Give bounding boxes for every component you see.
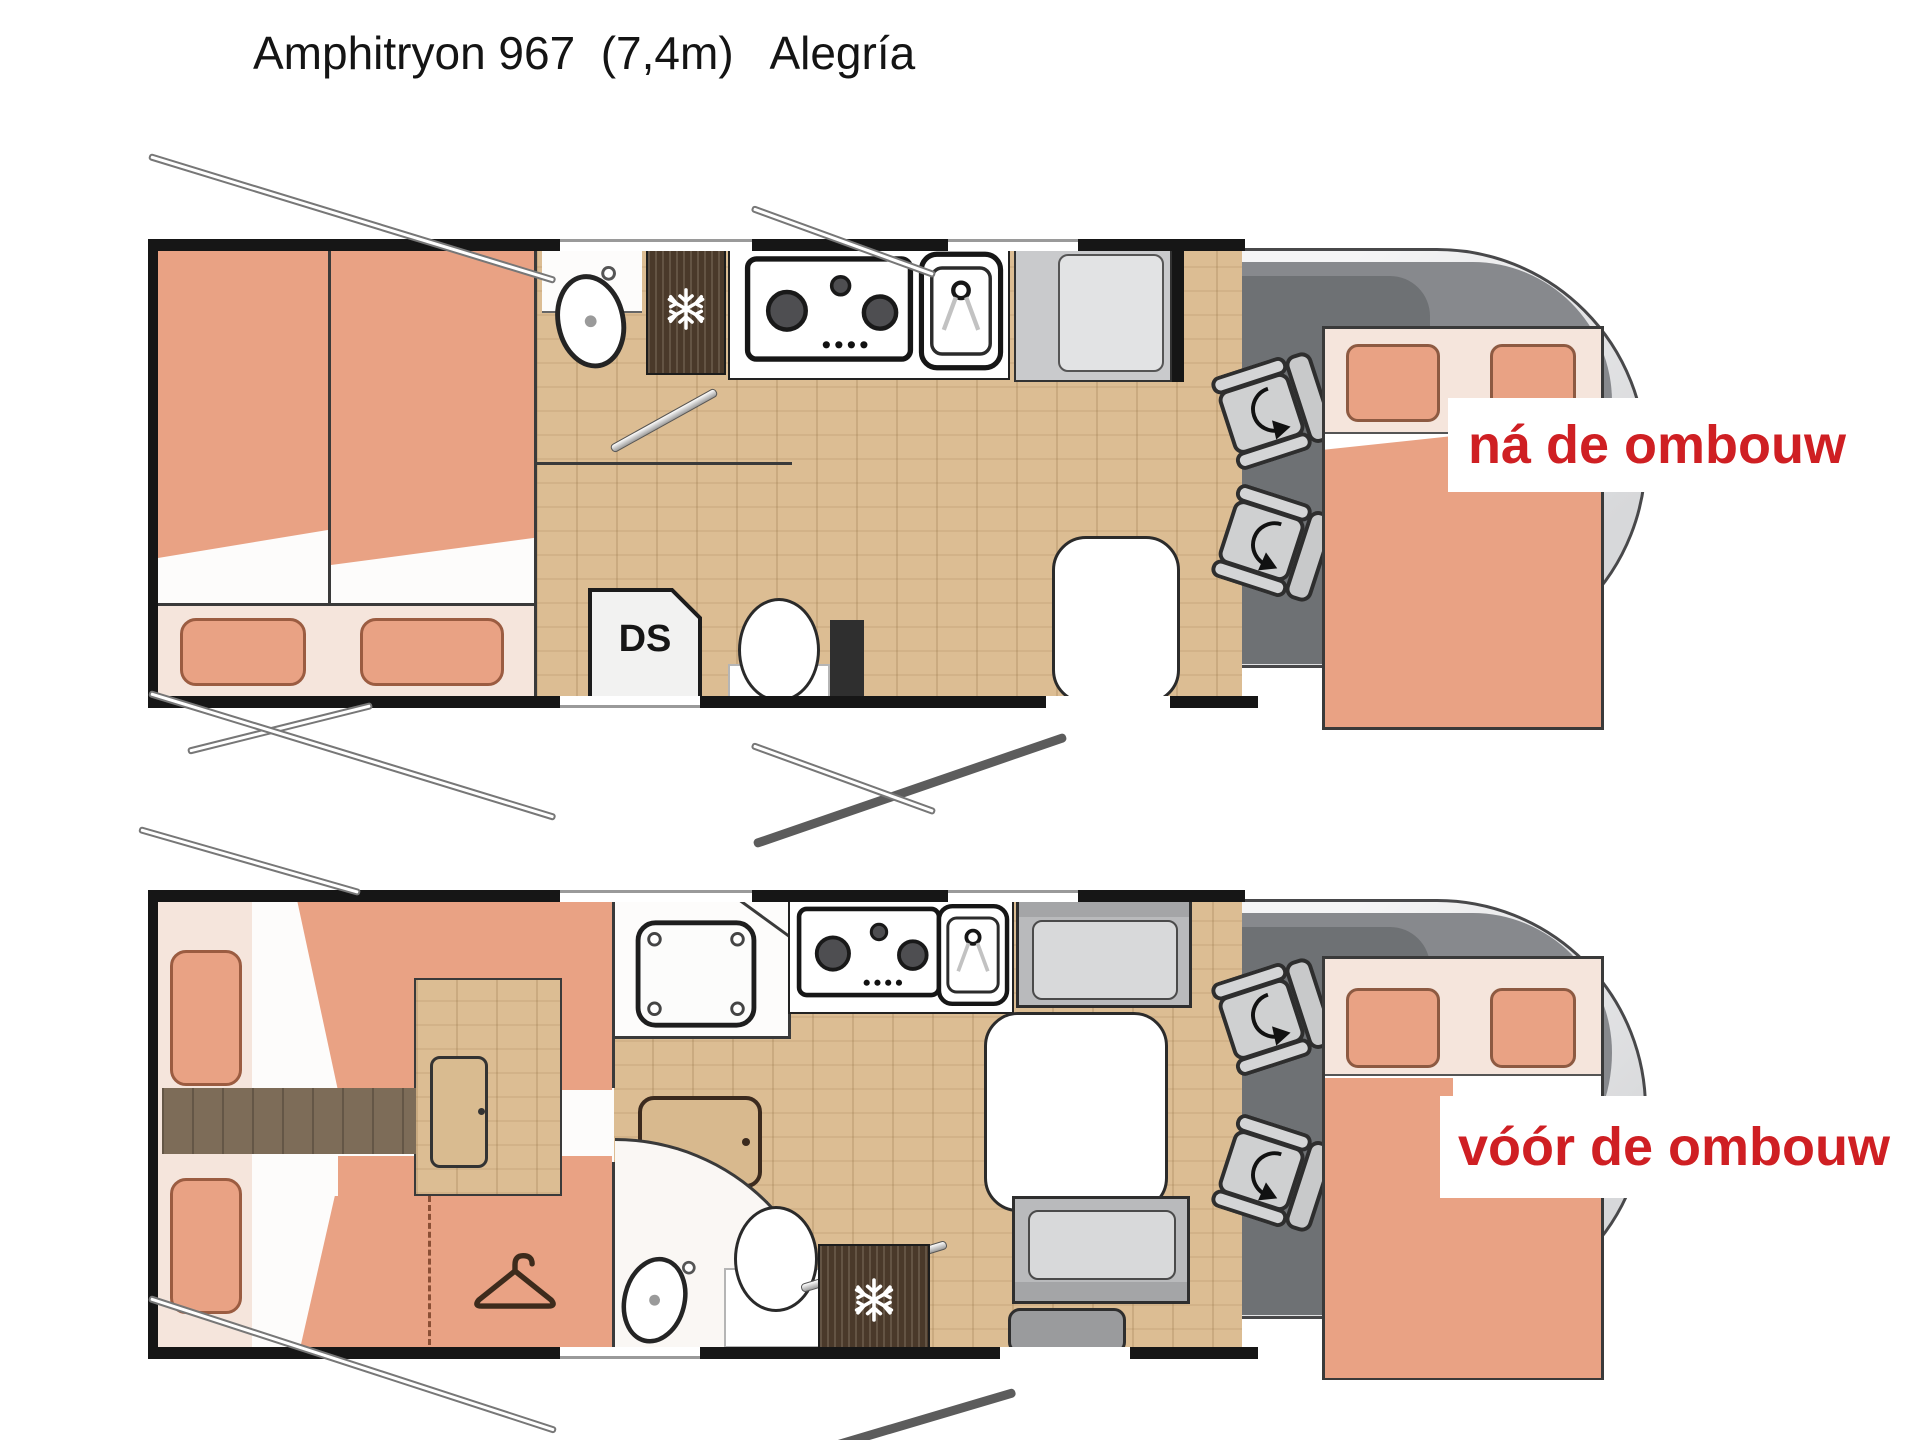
window: [560, 1347, 700, 1359]
single-bed-top: [414, 894, 562, 978]
toilet-icon: [734, 1206, 818, 1312]
shower-tray-icon: [632, 918, 760, 1030]
dinette-table: [1052, 536, 1180, 704]
wardrobe-dashed-line: [428, 1196, 431, 1354]
shower-label: DS: [588, 618, 702, 661]
entry-door: [795, 1388, 1016, 1440]
bench-seat: [1032, 920, 1178, 1000]
bedroom-wall: [534, 243, 537, 696]
bench-backrest: [1015, 1282, 1187, 1301]
snowflake-icon: [850, 1276, 898, 1324]
window: [948, 890, 1078, 902]
bed-head-line: [1325, 1074, 1601, 1076]
entry-door-opening: [1046, 696, 1170, 708]
shower-wall: [615, 1036, 791, 1039]
roof-rail: [138, 826, 361, 896]
sink-icon: [936, 902, 1010, 1008]
step-knob: [478, 1108, 485, 1115]
stove-icon: [744, 254, 914, 364]
bench-seat: [1028, 1210, 1176, 1280]
overcab-mattress: [1325, 1196, 1601, 1378]
single-bed-top: [562, 894, 612, 1090]
sideboard-top: [1058, 254, 1164, 372]
wall-rear: [148, 890, 158, 1359]
window: [560, 890, 752, 902]
bed-head-cushion: [170, 1178, 242, 1314]
single-bed-bottom: [562, 1156, 612, 1196]
bed-pillow: [1490, 988, 1576, 1068]
entry-door: [753, 733, 1068, 849]
overcab-mattress: [1325, 468, 1601, 727]
single-bed-bottom: [338, 1156, 414, 1196]
page-title: Amphitryon 967 (7,4m) Alegría: [253, 26, 915, 80]
bathroom-wall: [536, 462, 792, 465]
toilet-icon: [738, 598, 820, 702]
hanger-icon: [470, 1238, 560, 1322]
entry-door-opening: [1000, 1347, 1130, 1359]
single-bed-right: [331, 243, 536, 565]
stove-icon: [796, 904, 942, 1000]
window: [560, 696, 700, 708]
single-bed-left: [158, 243, 330, 558]
bed-foot-cushion: [360, 618, 504, 686]
cabinet-block: [830, 620, 864, 700]
plan-after-label: ná de ombouw: [1468, 418, 1846, 472]
roof-rail: [751, 742, 937, 815]
bed-pillow: [1346, 988, 1440, 1068]
sink-icon: [918, 250, 1004, 372]
overcab-mattress: [1325, 1078, 1453, 1196]
cab-partition: [1172, 243, 1184, 382]
wall-rear: [148, 239, 158, 708]
bed-foot-cushion: [180, 618, 306, 686]
window: [948, 239, 1078, 251]
snowflake-icon: [663, 286, 709, 332]
dinette-table: [984, 1012, 1168, 1212]
bed-pillow: [1346, 344, 1440, 422]
floorplan-canvas: Amphitryon 967 (7,4m) Alegría: [0, 0, 1920, 1440]
cabinet-handle: [742, 1138, 750, 1146]
bed-head-cushion: [170, 950, 242, 1086]
bed-walkway: [162, 1088, 416, 1154]
window: [560, 239, 752, 251]
plan-before-label: vóór de ombouw: [1458, 1120, 1890, 1174]
